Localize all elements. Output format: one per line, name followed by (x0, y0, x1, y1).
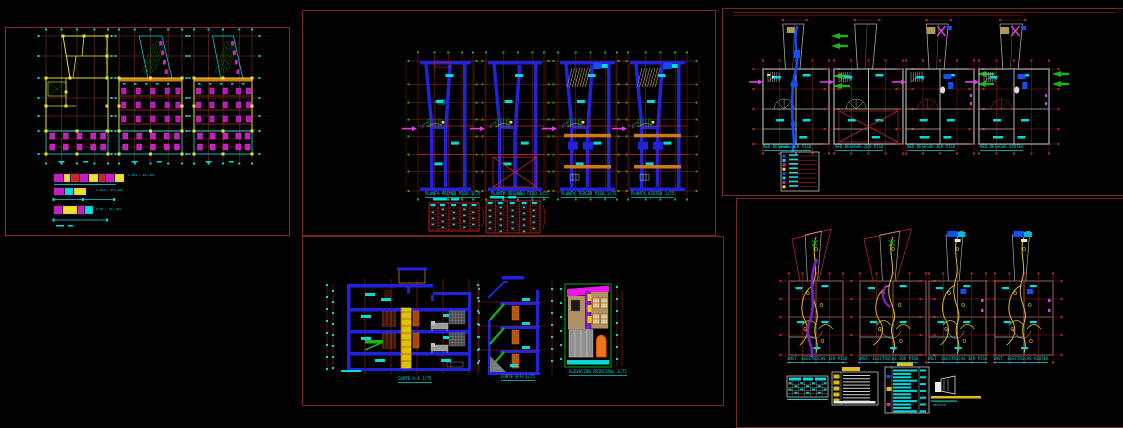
sheet-electrical-plans[interactable]: INST. ELECTRICAS 1ER PISO INST. ELECTRIC… (736, 198, 1123, 428)
section-title: CORTE B-B 1/75 (501, 374, 535, 381)
sheet-structural-plans[interactable]: V-101 (.25x.40) V-102 (.25x.40) V-CH (.1… (5, 27, 290, 236)
beam-legend-label: V-101 (.25x.40) (128, 174, 155, 177)
section-title: CORTE A-A 1/75 (398, 376, 432, 383)
beam-legend-label: V-102 (.25x.40) (96, 189, 123, 192)
plan-title: PLANTA AZOTEA 1/75 (631, 191, 674, 198)
plan-title: PLANTA TERCER PISO 1/75 (561, 191, 616, 198)
plan-title: PLANTA SEGUNDO PISO 1/75 (491, 191, 549, 198)
electrical-plans-drawing (737, 199, 1123, 427)
detail-note: DETALLE (933, 404, 946, 407)
plan-title: RED DESAGUE 2DO PISO (835, 144, 883, 151)
structural-plans-drawing (6, 28, 289, 235)
sheet-sanitary-plans[interactable]: RED DESAGUE 1ER PISO RED DESAGUE 2DO PIS… (722, 8, 1123, 196)
floor-plans-drawing (303, 11, 715, 235)
sheet-floor-plans[interactable]: PLANTA PRIMER PISO 1/75 PLANTA SEGUNDO P… (302, 10, 716, 236)
plan-title: RED DESAGUE 3ER PISO (907, 144, 955, 151)
elevation-title: ELEVACION PRINCIPAL 1/75 (569, 369, 627, 376)
beam-legend-label: V-CH (.15x.20) (96, 208, 121, 211)
legend-title: LEYENDA (779, 146, 792, 149)
sheet-sections-elevation[interactable]: CORTE A-A 1/75 CORTE B-B 1/75 ELEVACION … (302, 236, 724, 406)
cad-model-space[interactable]: V-101 (.25x.40) V-102 (.25x.40) V-CH (.1… (0, 0, 1123, 428)
plan-title: INST. ELECTRICAS AZOTEA (993, 356, 1048, 363)
plan-title: INST. ELECTRICAS 3ER PISO (927, 356, 987, 363)
sanitary-plans-drawing (723, 9, 1123, 195)
plan-title: PLANTA PRIMER PISO 1/75 (425, 191, 480, 198)
plan-title: INST. ELECTRICAS 2DO PISO (858, 356, 918, 363)
plan-title: RED DESAGUE AZOTEA (980, 144, 1023, 151)
plan-title: INST. ELECTRICAS 1ER PISO (787, 356, 847, 363)
